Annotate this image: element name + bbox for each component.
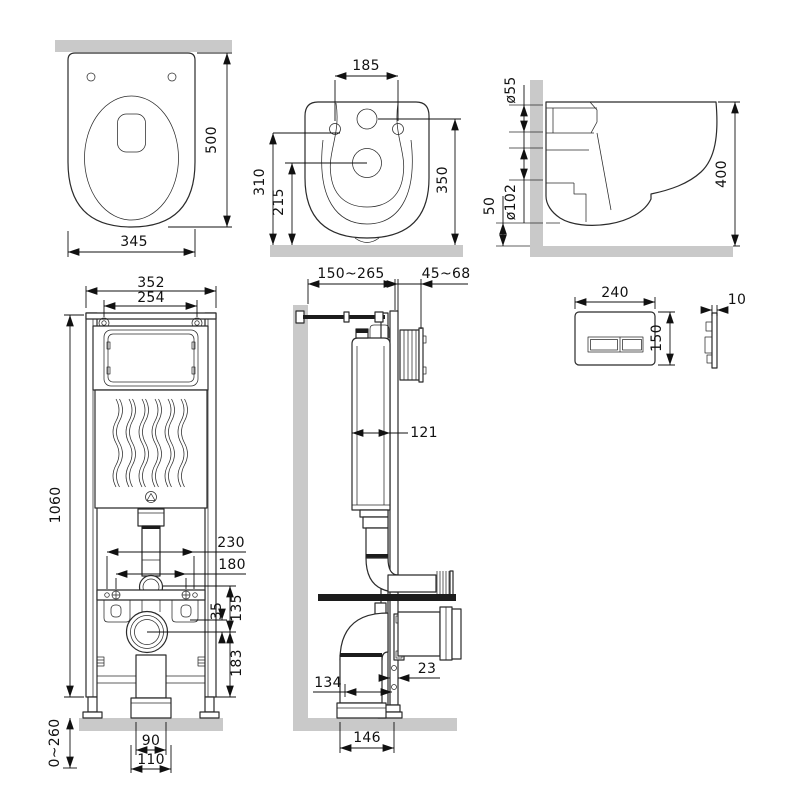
support-crossbar: [318, 594, 456, 601]
svg-text:121: 121: [410, 425, 438, 441]
flush-pipe-ribs: [437, 571, 453, 596]
svg-text:134: 134: [314, 675, 342, 691]
waste-base: [337, 703, 386, 718]
pan-top-view: 500 345: [55, 40, 232, 257]
dim-foot-adjust: 0~260: [47, 718, 77, 768]
dim-10: 10: [701, 292, 746, 316]
pan-body: [68, 53, 195, 227]
svg-text:50: 50: [482, 197, 498, 215]
pan-profile: [546, 102, 717, 225]
svg-text:10: 10: [728, 292, 746, 308]
svg-text:183: 183: [229, 649, 245, 677]
svg-text:135: 135: [229, 594, 245, 622]
svg-text:150~265: 150~265: [317, 266, 384, 282]
svg-text:35: 35: [209, 602, 225, 620]
dim-plate-range: 45~68: [388, 266, 470, 329]
dim-400: 400: [714, 102, 740, 246]
pan-body: [305, 102, 429, 238]
frame-front-view: 352 254 1060 230 180 135 35: [47, 275, 246, 773]
svg-text:110: 110: [137, 752, 165, 768]
dim-183: 183: [216, 632, 245, 697]
wall-section: [270, 245, 463, 257]
svg-text:90: 90: [142, 733, 160, 749]
flush-outlet-pipe: [388, 575, 436, 592]
svg-text:352: 352: [137, 275, 165, 291]
access-panel: [93, 326, 208, 390]
pan-rear-view: 185 310 215 350: [252, 58, 463, 257]
svg-text:254: 254: [137, 290, 165, 306]
installation-dimension-drawing: 500 345 185 310 215 350: [0, 0, 800, 800]
waste-inlet-stub: [375, 603, 386, 614]
waste-down-pipe: [136, 655, 166, 698]
svg-text:146: 146: [353, 730, 381, 746]
floor-section: [79, 718, 223, 731]
svg-text:230: 230: [217, 535, 245, 551]
dim-1060: 1060: [48, 315, 84, 697]
svg-text:240: 240: [601, 285, 629, 301]
svg-text:23: 23: [418, 661, 436, 677]
cistern-tank: [352, 325, 390, 558]
wall-bracket-rod: [296, 311, 385, 323]
svg-text:310: 310: [252, 168, 268, 196]
flush-plate-sleeve: [400, 328, 426, 382]
frame-side-view: 150~265 45~68 121 23 134 146: [293, 266, 470, 753]
waste-outlet-pipe: [398, 612, 440, 656]
waste-base: [131, 698, 171, 718]
svg-text:ø102: ø102: [503, 184, 519, 221]
svg-text:185: 185: [352, 58, 380, 74]
svg-text:45~68: 45~68: [422, 266, 471, 282]
flush-bend-collar: [138, 509, 164, 526]
pan-side-view: ø55 ø102 50 400: [482, 76, 740, 257]
bottom-lug: [355, 238, 379, 243]
waste-elbow: [340, 613, 388, 660]
svg-text:ø55: ø55: [503, 76, 519, 103]
svg-text:345: 345: [120, 234, 148, 250]
svg-text:350: 350: [435, 166, 451, 194]
svg-text:150: 150: [649, 324, 665, 352]
wall-section: [55, 40, 232, 52]
dim-50: 50: [482, 196, 503, 246]
dim-345: 345: [68, 229, 195, 257]
flush-plate-front-view: 240 150: [575, 285, 675, 365]
cistern-box: [95, 390, 207, 508]
dim-180: 180: [116, 557, 246, 589]
svg-text:0~260: 0~260: [47, 719, 63, 768]
dim-wall-range: 150~265: [308, 266, 395, 310]
flush-plate-side-view: 10: [701, 292, 746, 368]
svg-text:1060: 1060: [48, 487, 64, 524]
svg-text:400: 400: [714, 160, 730, 188]
plate-mechanism: [705, 322, 712, 363]
svg-text:180: 180: [218, 557, 246, 573]
dim-23: 23: [380, 661, 440, 678]
flush-pipe: [142, 526, 160, 576]
dim-110: 110: [131, 745, 171, 773]
waste-down-pipe: [340, 655, 382, 703]
svg-text:215: 215: [271, 188, 287, 216]
svg-text:500: 500: [204, 126, 220, 154]
plate-profile: [712, 313, 717, 368]
dim-240: 240: [575, 285, 655, 309]
